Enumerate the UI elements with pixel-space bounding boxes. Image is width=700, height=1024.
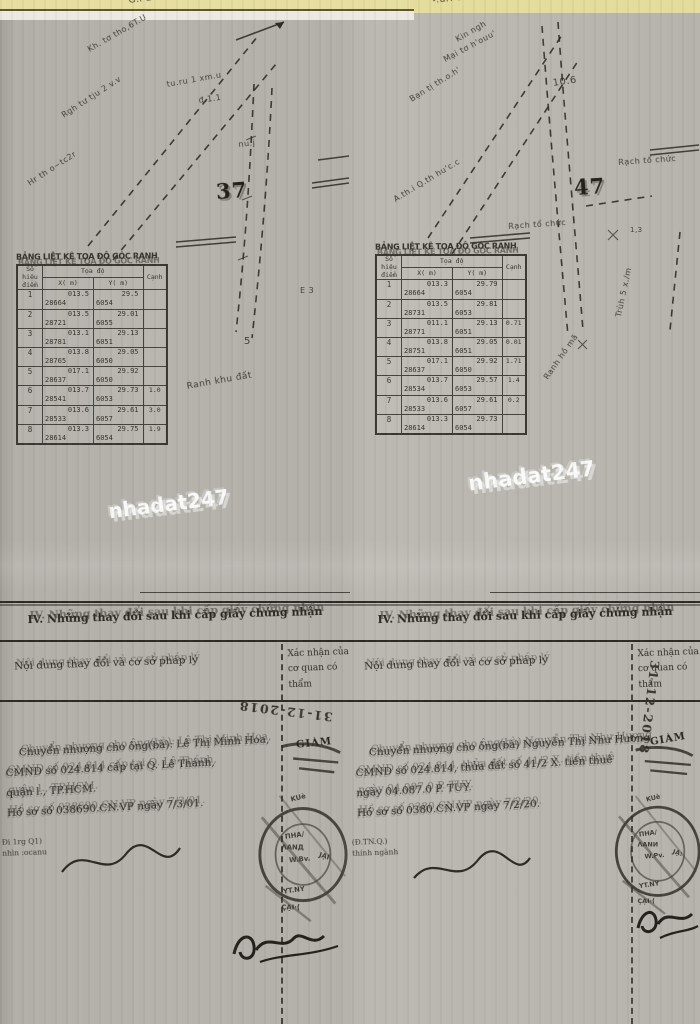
- col-header-y: Y( m): [94, 278, 144, 290]
- table-cell: 011.128771: [402, 318, 453, 337]
- table-cell: 29.56054: [94, 290, 144, 309]
- sketch-annotation: đ.1.1: [198, 93, 222, 105]
- table-cell: 29.136051: [453, 318, 503, 337]
- table-cell: [502, 414, 526, 434]
- table-row: 3011.12877129.1360510.71: [376, 318, 526, 337]
- coordinate-rows: 1013.52866429.560542013.52872129.0160553…: [17, 290, 167, 444]
- table-row: 7013.62853329.6160573.0: [17, 405, 167, 424]
- entry-footnote: (Đ.TN.Q.) thính ngành: [352, 835, 399, 859]
- table-cell: 017.128637: [402, 357, 453, 376]
- table-cell: 3.0: [143, 405, 167, 424]
- certificate-page-right: -.uri eduhgri-Kin nghMại tơ h'ouu'10.6Bạ…: [350, 0, 700, 1024]
- table-cell: 8: [376, 414, 402, 434]
- table-cell: 7: [376, 395, 402, 414]
- table-title: BẢNG LIỆT KÊ TỌA ĐỘ GÓC RANH: [375, 241, 527, 251]
- table-cell: 013.528664: [43, 290, 94, 309]
- section-iv: IV. Những thay đổi sau khi cấp giấy chứn…: [0, 588, 350, 1024]
- column-header-content: Nội dung thay đổi và cơ sở pháp lý: [364, 652, 619, 673]
- table-cell: 29.616057: [94, 405, 144, 424]
- table-cell: 6: [376, 376, 402, 395]
- svg-text:W.Bv.: W.Bv.: [289, 855, 311, 865]
- table-cell: 013.328614: [402, 414, 453, 434]
- sketch-annotation: Rạch tổ chức: [508, 218, 566, 231]
- table-cell: 29.756054: [94, 424, 144, 444]
- table-cell: 0.71: [502, 318, 526, 337]
- table-cell: 2: [376, 299, 402, 318]
- rule-line: [350, 640, 700, 642]
- table-cell: [143, 367, 167, 386]
- col-header-edge: Cạnh: [143, 265, 167, 290]
- table-cell: 013.628533: [43, 405, 94, 424]
- sketch-annotation: 1,3: [630, 226, 643, 234]
- table-row: 4013.82875129.0560510.01: [376, 337, 526, 356]
- column-header-content: Nội dung thay đổi và cơ sở pháp lý: [14, 652, 269, 673]
- svg-text:ΛANД: ΛANД: [281, 844, 303, 852]
- confirm-line-1: Xác nhận của: [287, 645, 357, 663]
- table-cell: 013.528731: [402, 299, 453, 318]
- table-cell: [502, 299, 526, 318]
- table-cell: 1.0: [143, 386, 167, 405]
- svg-text:ПНА/: ПНА/: [638, 828, 658, 839]
- table-cell: 1: [376, 280, 402, 299]
- sketch-annotation: tu.ru 1 xm.u: [166, 70, 222, 88]
- table-row: 3013.12878129.136051: [17, 328, 167, 347]
- rule-line: [0, 700, 350, 702]
- certificate-page-left: G.i LUHUTD sv +-Kh. tơ tho,6T.Utu.ru 1 x…: [0, 0, 350, 1024]
- sketch-annotation: Rạch tổ chức: [618, 154, 676, 167]
- sketch-annotation: Ranh hồ mã: [542, 332, 580, 381]
- sketch-annotation: Kh. tơ tho,6T.U: [86, 13, 148, 54]
- sketch-annotation: Rgh tư tju 2 v.v: [60, 74, 123, 119]
- table-cell: 29.056051: [453, 337, 503, 356]
- table-cell: [143, 328, 167, 347]
- footnote-line-2: nhìn :ocanu: [2, 846, 47, 859]
- table-cell: [143, 309, 167, 328]
- coordinate-rows: 1013.32866429.7960542013.52873129.816053…: [376, 280, 526, 434]
- sketch-annotation: Ranh khu đất: [186, 371, 253, 392]
- table-row: 1013.52866429.56054: [17, 290, 167, 309]
- table-cell: 5: [376, 357, 402, 376]
- column-header-confirm: Xác nhận của cơ quan có thẩm: [287, 645, 359, 693]
- table-row: 2013.52872129.016055: [17, 309, 167, 328]
- signature: [226, 924, 346, 976]
- table-cell: 0.01: [502, 337, 526, 356]
- table-cell: 29.616057: [453, 395, 503, 414]
- table-row: 2013.52873129.816053: [376, 299, 526, 318]
- table-row: 5017.12863729.9260501.71: [376, 357, 526, 376]
- table-row: 1013.32866429.796054: [376, 280, 526, 299]
- entry-footnote: Đi 1rg Q1) nhìn :ocanu: [2, 835, 47, 859]
- table-cell: 1: [17, 290, 43, 309]
- col-header-coord: Tọa độ: [402, 255, 503, 268]
- svg-text:W.Pv.: W.Pv.: [644, 851, 664, 861]
- table-cell: 013.728534: [402, 376, 453, 395]
- sketch-annotation: Hr th o~tc2r: [26, 149, 78, 187]
- sketch-annotation: 10.6: [552, 75, 578, 89]
- rule-line: [140, 592, 350, 593]
- table-row: 8013.32861429.736054: [376, 414, 526, 434]
- rule-line: [0, 601, 350, 603]
- col-header-point: Số hiệu điểm: [17, 265, 43, 290]
- handwritten-flourish: [408, 848, 534, 892]
- table-cell: 013.128781: [43, 328, 94, 347]
- table-cell: 1.4: [502, 376, 526, 395]
- plot-number: 47: [573, 173, 606, 200]
- col-header-x: X( m): [402, 268, 453, 280]
- table-cell: 4: [376, 337, 402, 356]
- table-cell: 1.9: [143, 424, 167, 444]
- table-cell: 013.328614: [43, 424, 94, 444]
- rule-line: [490, 592, 700, 593]
- table-cell: 013.528721: [43, 309, 94, 328]
- svg-text:JẠI: JẠI: [317, 850, 330, 861]
- table-cell: 013.628533: [402, 395, 453, 414]
- svg-text:ÇẠI·(: ÇẠI·(: [281, 903, 300, 911]
- table-row: 5017.12863729.926050: [17, 367, 167, 386]
- table-cell: 29.056050: [94, 347, 144, 366]
- table-row: 6013.72853429.5760531.4: [376, 376, 526, 395]
- col-header-y: Y( m): [453, 268, 503, 280]
- sketch-annotation: nu.j: [238, 138, 256, 149]
- plot-number: 37: [215, 177, 248, 204]
- table-cell: 29.926050: [453, 357, 503, 376]
- table-row: 7013.62853329.6160570.2: [376, 395, 526, 414]
- svg-text:ПНА/: ПНА/: [284, 830, 305, 841]
- table-cell: 29.016055: [94, 309, 144, 328]
- official-round-stamp: KUè ПНА/ ΛANД W.Bv. JẠI YT.NY ÇẠI·(: [252, 738, 350, 926]
- table-cell: 29.136051: [94, 328, 144, 347]
- section-iv-title: IV. Những thay đổi sau khi cấp giấy chứn…: [6, 604, 344, 626]
- sketch-annotation: E 3: [300, 286, 314, 295]
- transfer-entry-text: Chuyển nhượng cho ông(bà) Nguyễn Thị Như…: [355, 733, 635, 828]
- transfer-entry-text: Chuyển nhượng cho ông(bà): Lê Thị Minh H…: [5, 733, 285, 828]
- coordinate-table: BẢNG LIỆT KÊ TỌA ĐỘ GÓC RANH BẢNG LIỆT K…: [16, 252, 168, 445]
- coordinate-table: BẢNG LIỆT KÊ TỌA ĐỘ GÓC RANH BẢNG LIỆT K…: [375, 242, 527, 435]
- table-cell: 1.71: [502, 357, 526, 376]
- svg-text:KUè: KUè: [645, 792, 662, 803]
- table-cell: 0.2: [502, 395, 526, 414]
- sketch-annotation: -.uri eduhgri-: [432, 0, 498, 6]
- table-title: BẢNG LIỆT KÊ TỌA ĐỘ GÓC RANH: [16, 251, 168, 261]
- svg-text:ΛANИ: ΛANИ: [637, 841, 658, 849]
- sketch-annotation: 5: [244, 336, 251, 347]
- scanned-land-certificate: G.i LUHUTD sv +-Kh. tơ tho,6T.Utu.ru 1 x…: [0, 0, 700, 1024]
- sketch-annotation: G.i LUHUTD sv +-: [128, 0, 215, 6]
- table-cell: 29.796054: [453, 280, 503, 299]
- table-cell: 013.828751: [402, 337, 453, 356]
- table-cell: 6: [17, 386, 43, 405]
- table-cell: 29.576053: [453, 376, 503, 395]
- table-cell: [143, 347, 167, 366]
- table-cell: 29.736053: [94, 386, 144, 405]
- confirm-line-1: Xác nhận của: [637, 645, 700, 663]
- rule-line: [0, 640, 350, 642]
- col-header-point: Số hiệu điểm: [376, 255, 402, 280]
- table-cell: 3: [376, 318, 402, 337]
- col-header-edge: Cạnh: [502, 255, 526, 280]
- table-row: 4013.82876529.056050: [17, 347, 167, 366]
- svg-text:YT.NY: YT.NY: [637, 879, 660, 890]
- sketch-annotation: A.th.i Q.th hu'c.c: [392, 157, 461, 204]
- table-cell: [502, 280, 526, 299]
- handwritten-flourish: [58, 840, 184, 884]
- svg-text:KUè: KUè: [290, 792, 307, 804]
- signature: [632, 900, 700, 952]
- table-cell: 013.828765: [43, 347, 94, 366]
- table-cell: 7: [17, 405, 43, 424]
- date-stamp: 31-12-2018: [237, 698, 333, 724]
- table-cell: 4: [17, 347, 43, 366]
- svg-text:JẠ:: JẠ:: [671, 847, 684, 858]
- table-cell: 29.926050: [94, 367, 144, 386]
- sketch-annotation: Trùh 5 x./m: [614, 267, 633, 318]
- table-cell: 29.816053: [453, 299, 503, 318]
- footnote-line-2: thính ngành: [352, 846, 398, 859]
- table-cell: 8: [17, 424, 43, 444]
- sketch-annotation: Bạn tị th.o.h': [408, 65, 462, 103]
- confirm-line-2: cơ quan có thẩm: [288, 660, 359, 693]
- table-cell: 013.728541: [43, 386, 94, 405]
- table-row: 8013.32861429.7560541.9: [17, 424, 167, 444]
- svg-text:YT.NY: YT.NY: [282, 885, 307, 896]
- table-cell: 017.128637: [43, 367, 94, 386]
- table-cell: 2: [17, 309, 43, 328]
- rule-line: [350, 601, 700, 603]
- section-iv: IV. Những thay đổi sau khi cấp giấy chứn…: [350, 588, 700, 1024]
- section-iv-title: IV. Những thay đổi sau khi cấp giấy chứn…: [356, 604, 694, 626]
- table-cell: 29.736054: [453, 414, 503, 434]
- col-header-coord: Tọa độ: [43, 265, 144, 278]
- table-cell: 013.328664: [402, 280, 453, 299]
- table-row: 6013.72854129.7360531.0: [17, 386, 167, 405]
- col-header-x: X( m): [43, 278, 94, 290]
- table-cell: 5: [17, 367, 43, 386]
- table-cell: 3: [17, 328, 43, 347]
- table-cell: [143, 290, 167, 309]
- official-round-stamp: KUè ПНА/ ΛANИ W.Pv. JẠ: YT.NY ÇẠI·(: [608, 738, 700, 926]
